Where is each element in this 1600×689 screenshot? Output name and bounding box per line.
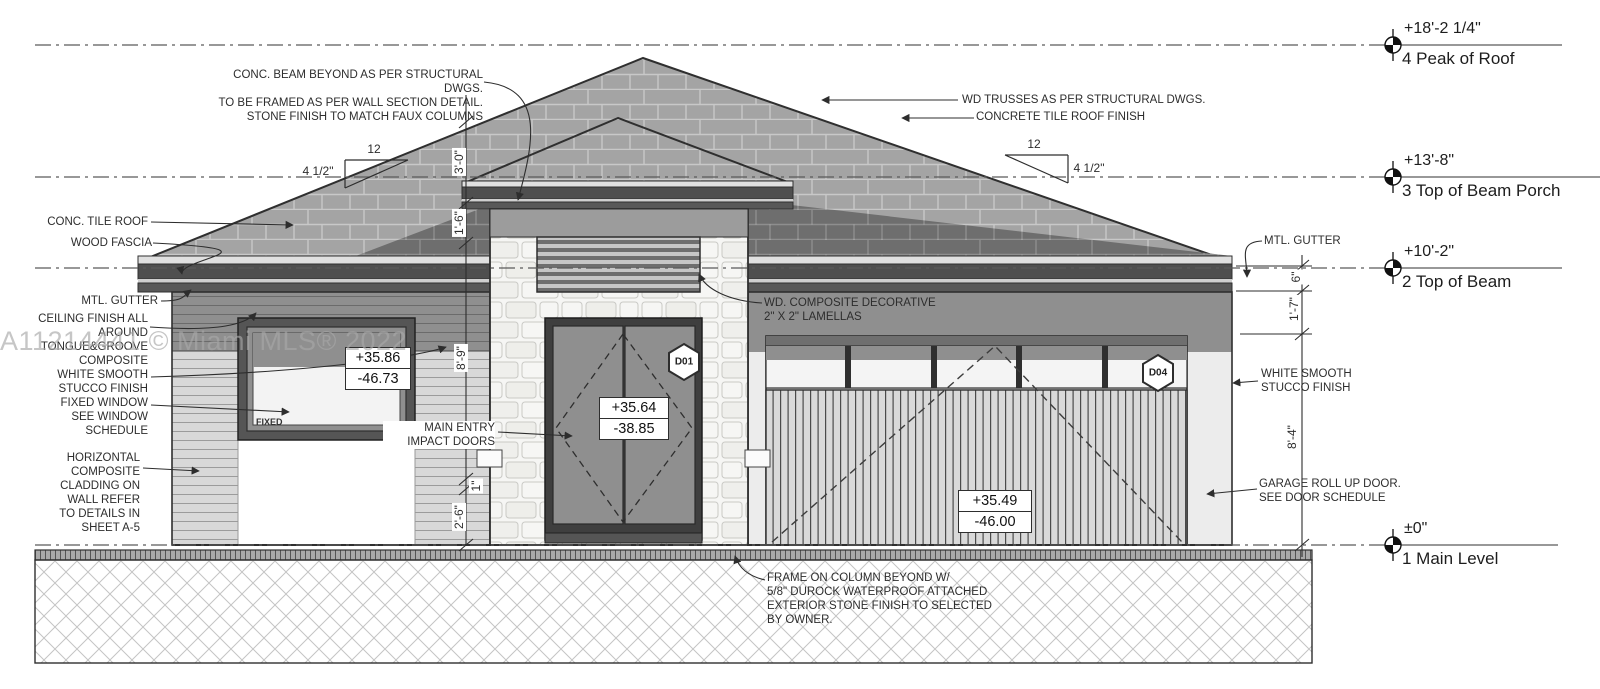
horizontal-cladding-note: HORIZONTAL COMPOSITE CLADDING ON WALL RE… [20,451,140,535]
concrete-tile-roof-note: CONCRETE TILE ROOF FINISH [976,110,1145,124]
conc-beam-note: CONC. BEAM BEYOND AS PER STRUCTURAL DWGS… [198,68,483,124]
conc-tile-roof-note: CONC. TILE ROOF [20,215,148,229]
garage-value-bottom: -46.00 [959,512,1031,532]
fixed-window-note: FIXED WINDOW SEE WINDOW SCHEDULE [20,396,148,438]
dim-8-9: 8'-9" [454,344,468,372]
wall-recess-below-window [238,437,415,545]
dim-8-4: 8'-4" [1285,423,1299,451]
slope-run-left: 12 [367,142,380,156]
dim-3-0: 3'-0" [452,148,466,176]
mtl-gutter-left-note: MTL. GUTTER [20,294,158,308]
tower-fascia [462,181,793,209]
wood-fascia-note: WOOD FASCIA [20,236,152,250]
slope-run-right: 12 [1027,137,1040,151]
level-name-beam-porch: 3 Top of Beam Porch [1402,181,1560,201]
white-stucco-left-note: WHITE SMOOTH STUCCO FINISH [20,368,148,396]
mls-watermark: A11214441 © Miami MLS® 2022 [0,326,407,357]
level-value-peak: +18'-2 1/4" [1404,20,1481,38]
dim-2-6: 2'-6" [452,503,466,531]
level-marker-symbol [1385,529,1401,561]
main-entry-note: MAIN ENTRY IMPACT DOORS [383,421,495,449]
level-marker-symbol [1385,161,1401,193]
slope-rise-left: 4 1/2" [303,164,334,178]
entry-tower [462,118,793,545]
dim-1-7: 1'-7" [1287,295,1301,323]
entry-value-top: +35.64 [600,398,668,419]
door-tag-d01: D01 [675,357,693,368]
door-tag-d04: D04 [1149,368,1167,379]
dim-1: 1" [469,479,483,494]
garage-header [766,336,1187,346]
level-marker-symbol [1385,29,1401,61]
tower-beam-band [490,209,748,237]
window-value-bottom: -46.73 [346,369,410,389]
wd-lamellas-note: WD. COMPOSITE DECORATIVE 2" X 2" LAMELLA… [764,296,936,324]
dim-1-6: 1'-6" [452,209,466,237]
column-trim-right [745,450,770,467]
level-marker-symbol [1385,252,1401,284]
level-value-beam-porch: +13'-8" [1404,152,1454,170]
garage-door-note: GARAGE ROLL UP DOOR. SEE DOOR SCHEDULE [1259,477,1401,505]
level-value-main: ±0" [1404,520,1427,538]
elevation-drawing-page: CONC. BEAM BEYOND AS PER STRUCTURAL DWGS… [0,0,1600,689]
mtl-gutter-right-note: MTL. GUTTER [1264,234,1341,248]
white-stucco-right-note: WHITE SMOOTH STUCCO FINISH [1261,367,1352,395]
level-name-peak: 4 Peak of Roof [1402,49,1514,69]
garage-elevation-values: +35.49 -46.00 [958,490,1032,533]
column-trim-left [477,450,502,467]
entry-elevation-values: +35.64 -38.85 [599,397,669,440]
lamellas-band [537,237,700,292]
slope-rise-right: 4 1/2" [1074,161,1105,175]
roof-slope-symbol-right [1005,155,1068,183]
frame-on-column-note: FRAME ON COLUMN BEYOND W/ 5/8" DUROCK WA… [767,571,992,627]
door-threshold [545,533,702,543]
level-value-beam: +10'-2" [1404,243,1454,261]
entry-value-bottom: -38.85 [600,419,668,439]
ground [35,550,1312,663]
garage-value-top: +35.49 [959,491,1031,512]
fixed-glass-label: FIXED [256,417,283,427]
wd-trusses-note: WD TRUSSES AS PER STRUCTURAL DWGS. [962,93,1205,107]
dim-6: 6" [1289,270,1303,285]
level-name-beam: 2 Top of Beam [1402,272,1511,292]
level-name-main: 1 Main Level [1402,549,1498,569]
